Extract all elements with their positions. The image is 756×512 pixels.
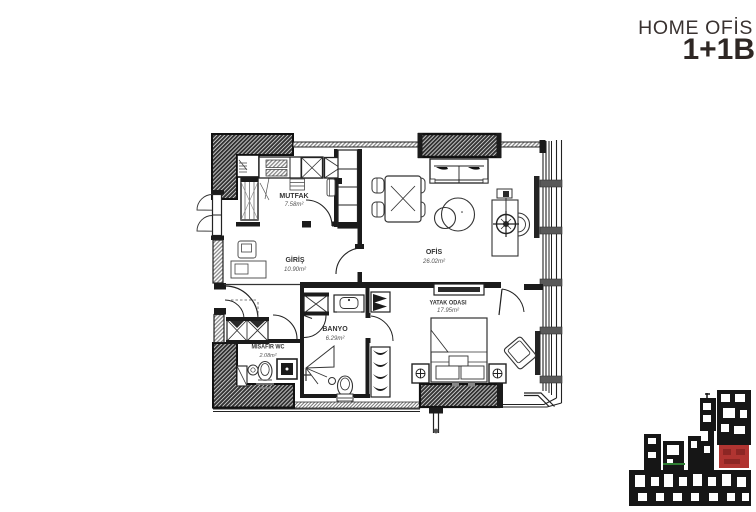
svg-text:10.90m²: 10.90m²: [284, 267, 307, 273]
svg-text:GİRİŞ: GİRİŞ: [285, 256, 304, 264]
svg-text:6.29m²: 6.29m²: [326, 336, 346, 342]
svg-text:17.95m²: 17.95m²: [437, 308, 460, 314]
svg-text:BANYO: BANYO: [322, 326, 348, 333]
svg-text:7.58m²: 7.58m²: [285, 202, 305, 208]
svg-text:2.08m²: 2.08m²: [258, 353, 276, 359]
svg-text:26.02m²: 26.02m²: [422, 259, 446, 265]
svg-text:MİSAFİR WC: MİSAFİR WC: [252, 343, 285, 351]
svg-text:OFİS: OFİS: [426, 248, 443, 256]
svg-text:MUTFAK: MUTFAK: [279, 193, 308, 200]
svg-text:YATAK ODASI: YATAK ODASI: [430, 300, 467, 307]
